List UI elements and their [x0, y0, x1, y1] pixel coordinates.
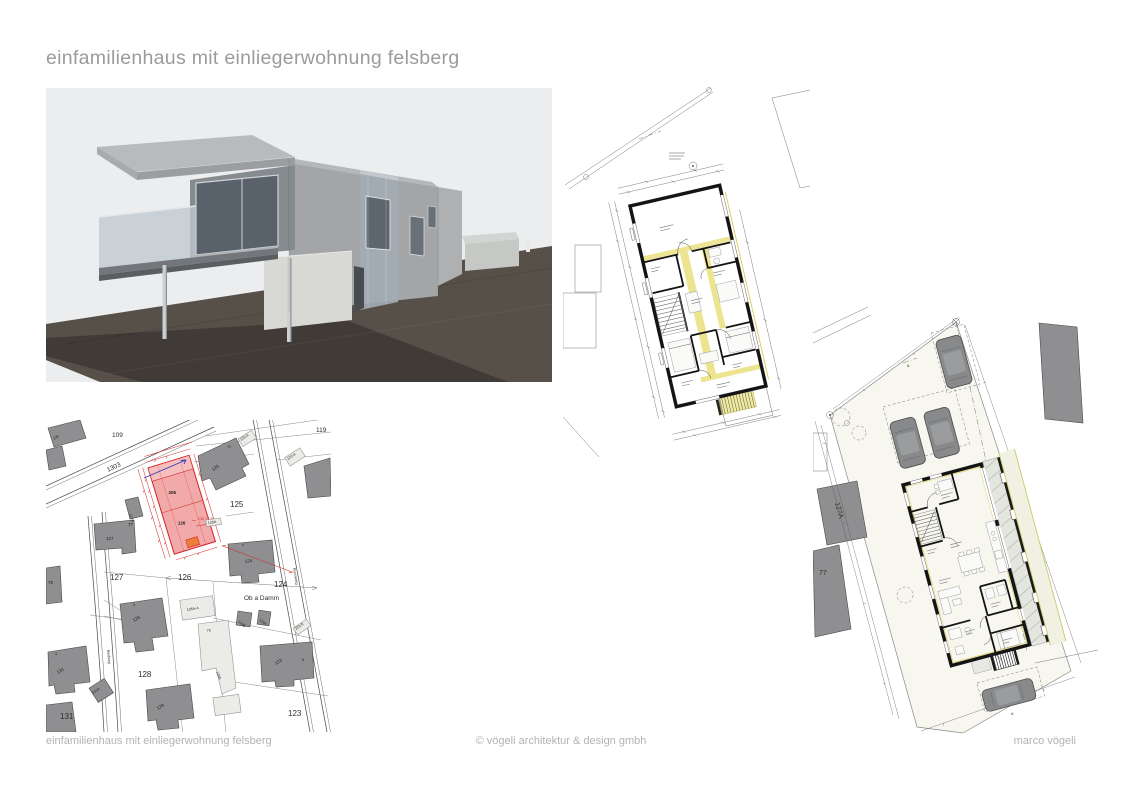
map-label-street-left: Riedweg [106, 650, 111, 664]
plan-lower-section-a-bottom: A [1011, 712, 1014, 716]
map-label-pl128: 128 [138, 670, 152, 679]
render-3d-image [46, 88, 552, 382]
floor-plan-upper [563, 85, 830, 457]
map-label-pl131: 131 [60, 712, 74, 721]
map-label-pl126: 126 [178, 573, 192, 582]
map-label-79: 79 [48, 580, 54, 585]
map-label-pl125: 125 [230, 500, 244, 509]
plan-upper-building [604, 161, 788, 444]
plan-lower-label-77: 77 [819, 570, 827, 577]
map-label-109: 109 [112, 432, 123, 439]
map-label-4-131: 4 [55, 652, 57, 656]
floor-plan-ground: A A 127A 77 [813, 303, 1122, 735]
footer-copyright: © vögeli architektur & design gmbh [0, 735, 1122, 747]
presentation-sheet: einfamilienhaus mit einliegerwohnung fel… [0, 0, 1122, 793]
map-label-3: 3 [133, 603, 135, 607]
footer-author: marco vögeli [1014, 735, 1076, 747]
map-label-75: 75 [206, 628, 211, 633]
page-title: einfamilienhaus mit einliegerwohnung fel… [46, 47, 460, 70]
map-label-highlight-bottom: 126 [178, 521, 186, 526]
map-label-b127: 127 [106, 536, 114, 541]
map-label-pl127: 127 [110, 573, 124, 582]
map-label-6: 6 [302, 658, 304, 662]
map-label-pl124: 124 [274, 580, 288, 589]
map-label-pl123: 123 [288, 709, 302, 718]
map-label-1303: 1303 [106, 461, 122, 474]
map-label-4-124: 4 [242, 543, 244, 547]
map-label-ob-a-damm: Ob a Damm [244, 595, 279, 602]
map-label-119: 119 [316, 427, 327, 434]
map-label-highlight-top: 206 [169, 490, 177, 495]
map-label-street-right: Runcaweg [292, 567, 299, 584]
map-label-77: 77 [128, 522, 134, 527]
plan-upper-note-text [669, 153, 685, 159]
site-plan-map: 206 126 1.52 + 1.50 109 108 1303 119 73 … [46, 420, 331, 732]
